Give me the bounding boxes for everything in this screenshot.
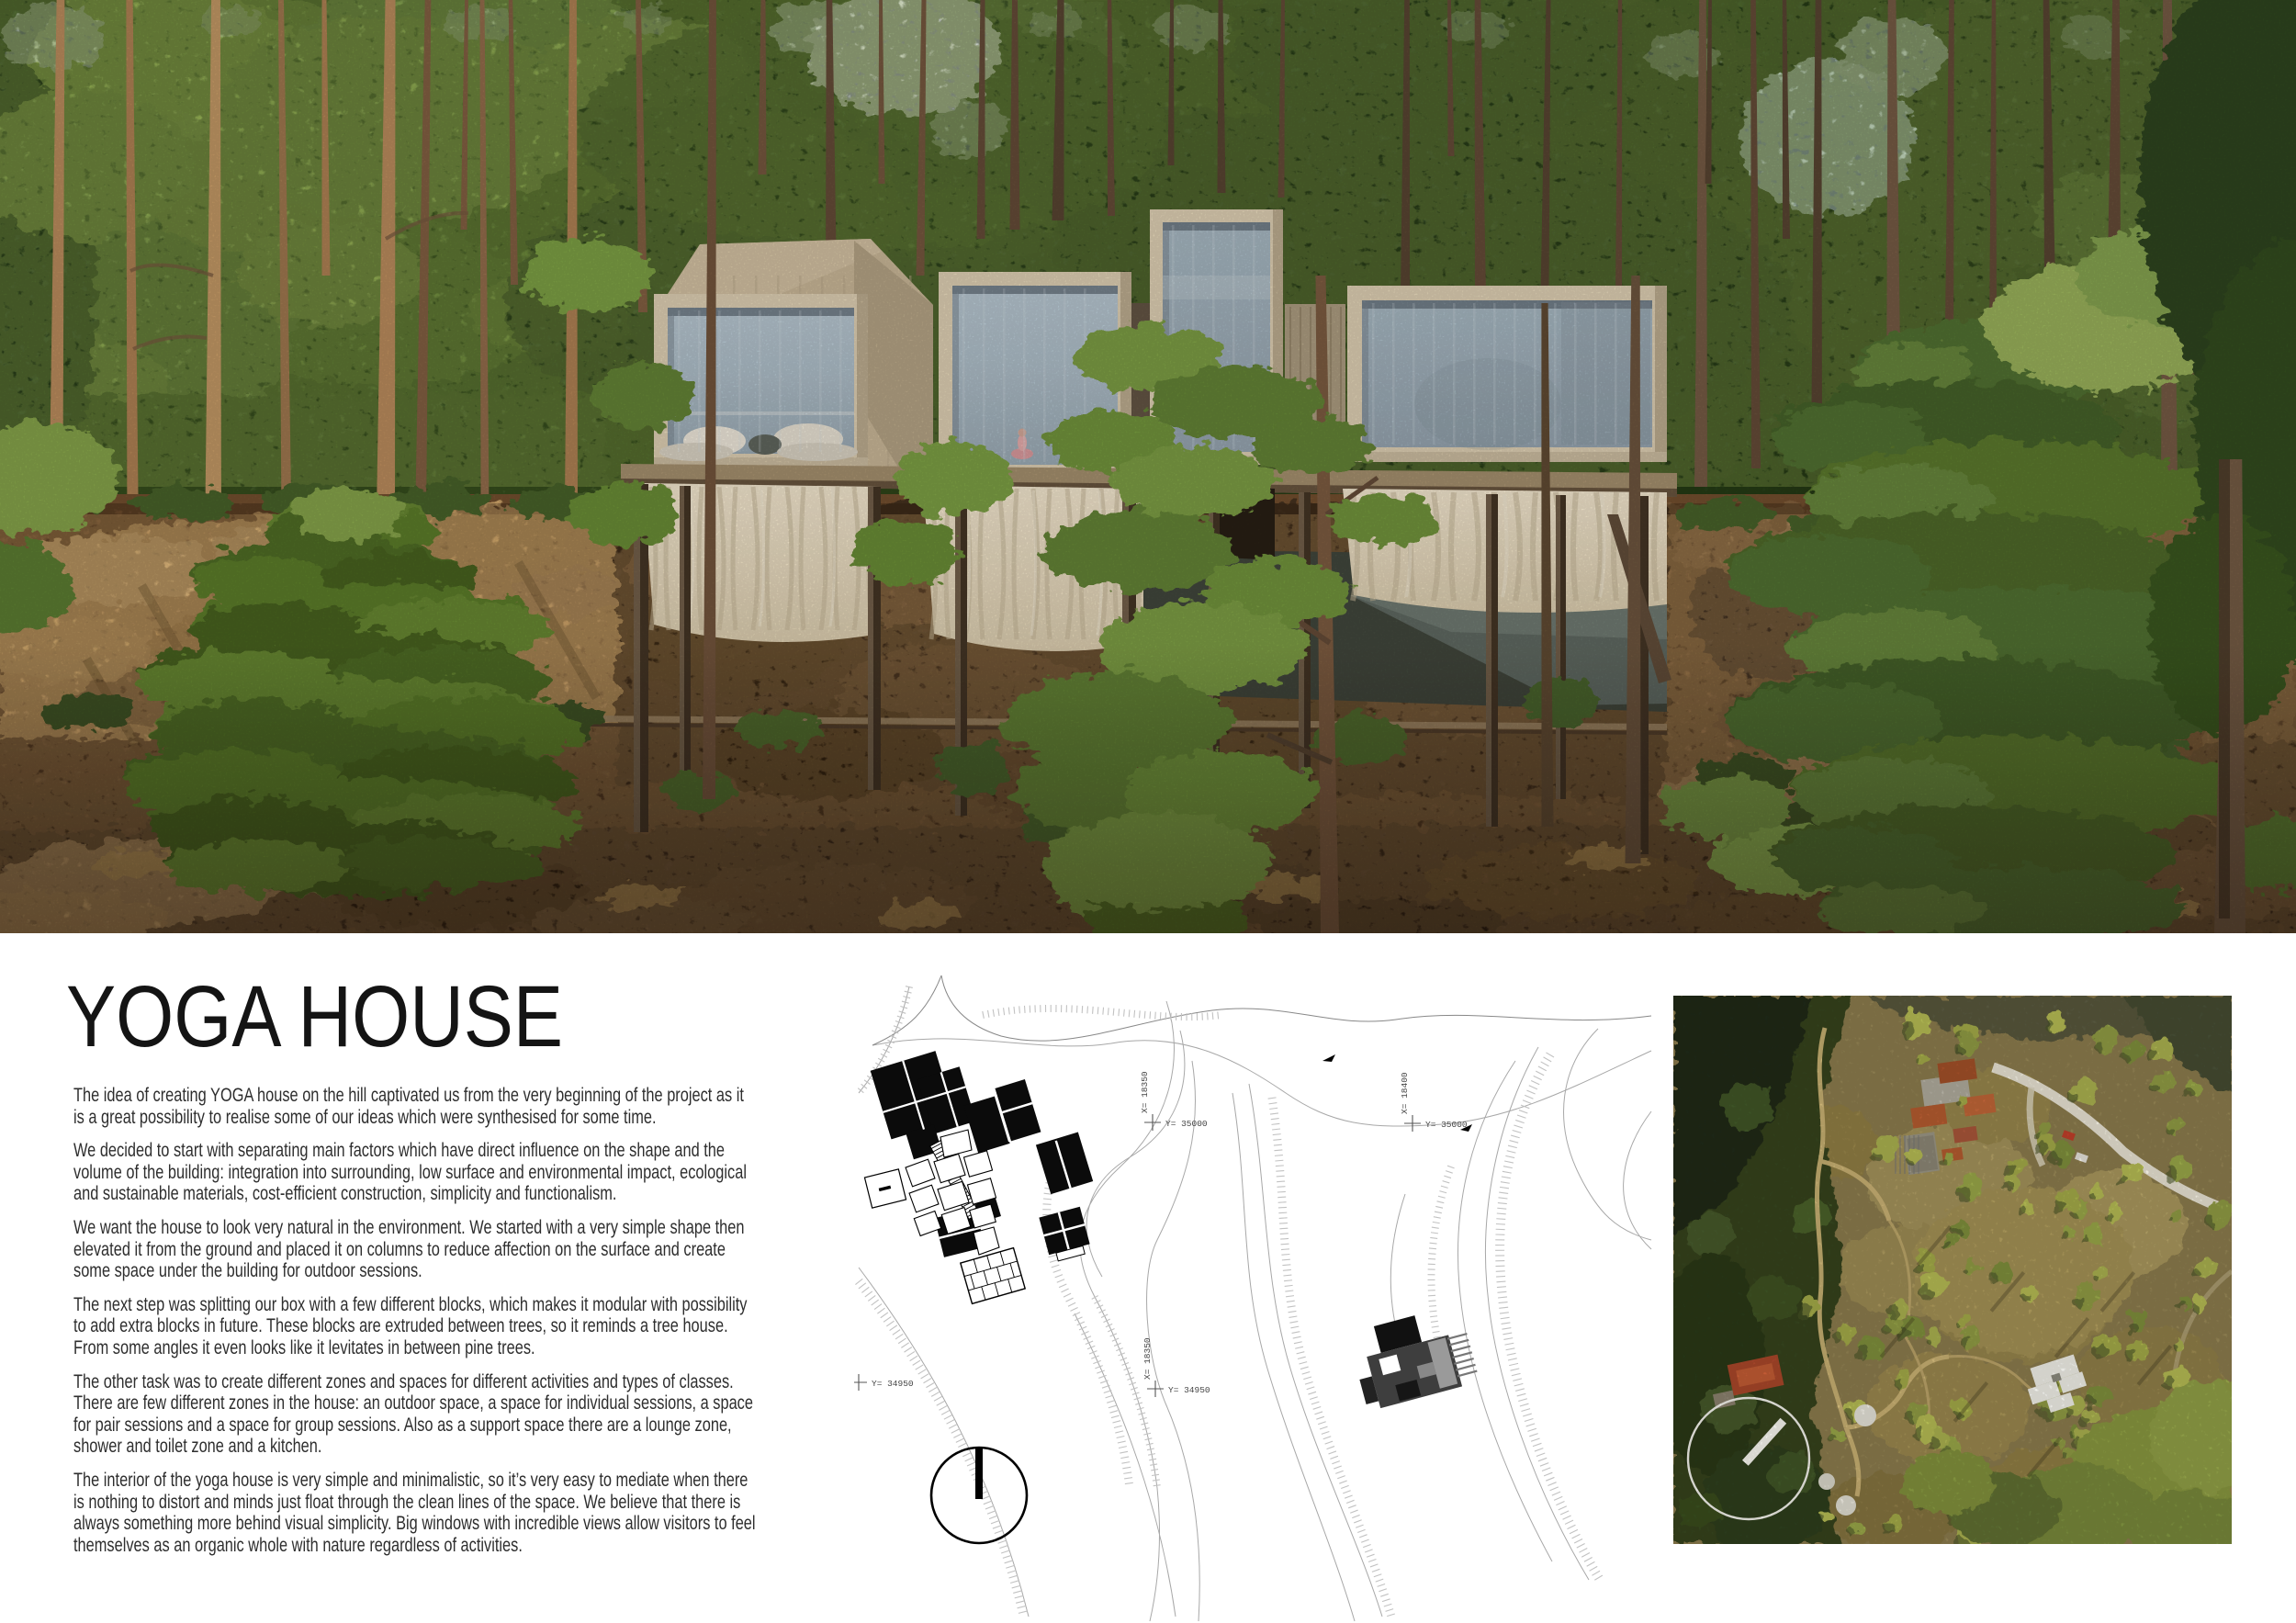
svg-text:Y= 34950: Y= 34950 — [1168, 1385, 1210, 1395]
svg-text:X= 18400: X= 18400 — [1400, 1072, 1410, 1114]
svg-text:Y= 35000: Y= 35000 — [1425, 1120, 1468, 1130]
svg-text:Y= 35000: Y= 35000 — [1165, 1119, 1208, 1129]
svg-text:Y= 34950: Y= 34950 — [872, 1379, 914, 1389]
svg-text:X= 18350: X= 18350 — [1142, 1337, 1153, 1380]
svg-text:X= 18300: X= 18300 — [854, 1331, 856, 1373]
svg-text:X= 18350: X= 18350 — [1140, 1071, 1150, 1113]
